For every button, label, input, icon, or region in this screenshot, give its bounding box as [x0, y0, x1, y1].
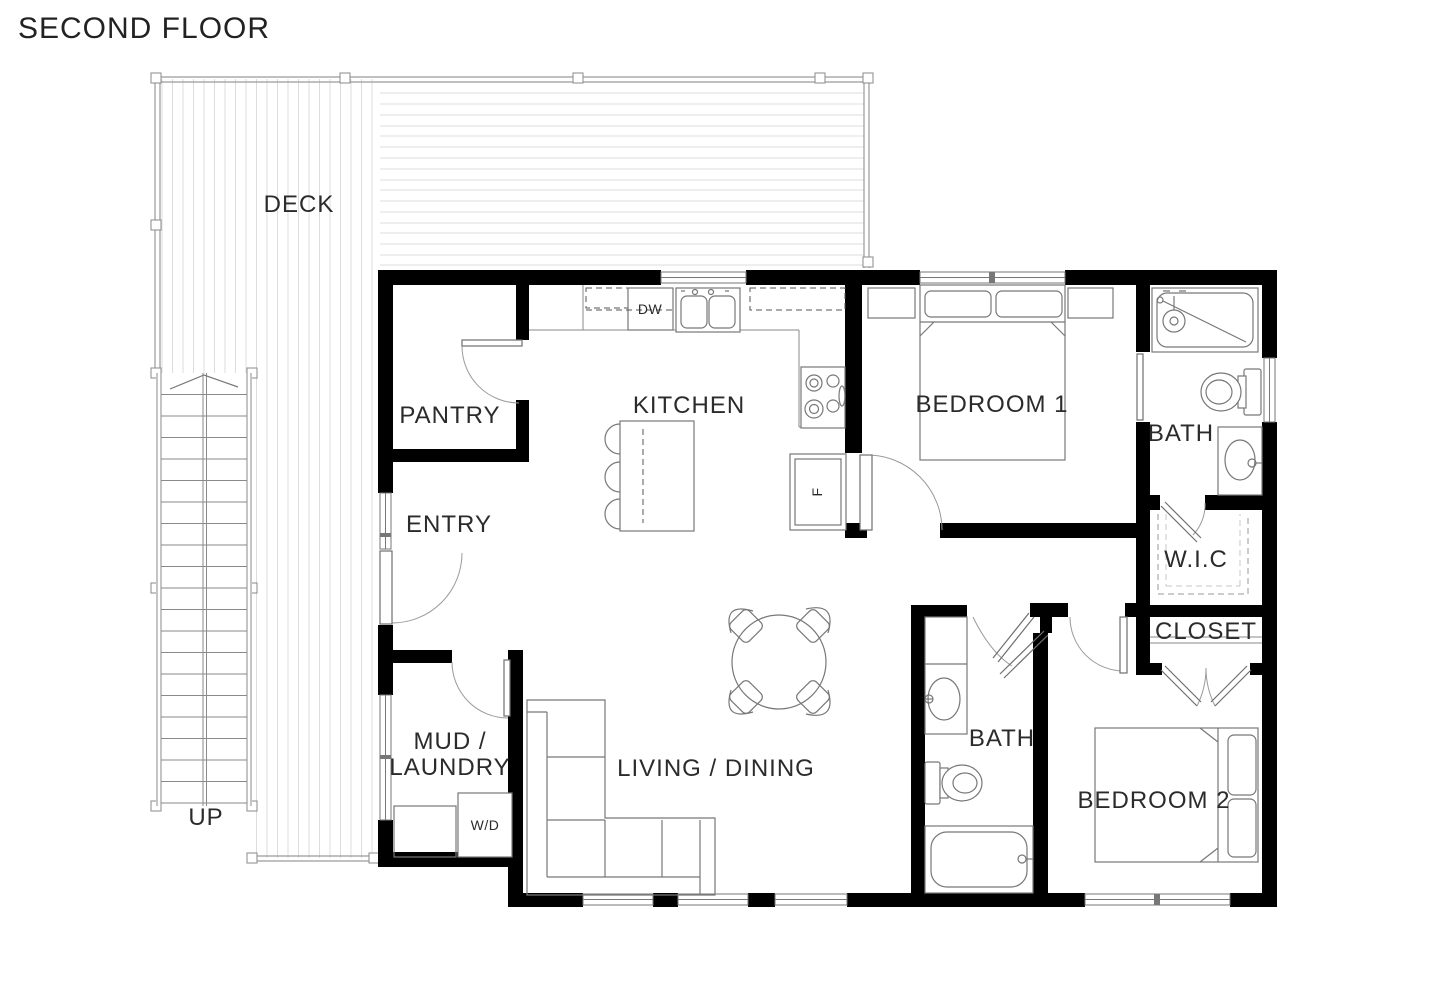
room-label-pantry: PANTRY	[399, 402, 500, 429]
toilet-bath2	[925, 762, 982, 804]
page-title: SECOND FLOOR	[18, 12, 270, 45]
dining-set	[728, 608, 832, 716]
dishwasher-label: DW	[638, 301, 663, 317]
room-label-bedroom2: BEDROOM 2	[1077, 787, 1230, 814]
bedroom1-door	[860, 455, 942, 530]
island-stool	[605, 424, 620, 454]
living-window-1	[583, 894, 653, 905]
room-label-kitchen: KITCHEN	[633, 392, 745, 419]
deck-planks-horizontal	[380, 93, 864, 265]
bath1-window	[1264, 358, 1275, 422]
dining-chair	[728, 608, 765, 645]
bath1-fixtures	[1152, 288, 1262, 495]
entry-door	[380, 551, 462, 624]
mud-bench	[394, 806, 456, 857]
dining-chair	[795, 608, 832, 645]
dining-table	[732, 615, 826, 709]
stairs	[156, 373, 252, 806]
bedroom1-furniture	[868, 285, 1113, 460]
nightstand	[1068, 288, 1113, 318]
kitchen-window	[661, 272, 746, 283]
room-label-deck: DECK	[264, 191, 335, 218]
bedroom1-window	[920, 272, 1065, 283]
bedroom2-door	[1070, 617, 1127, 673]
room-label-mud-line1: MUD /	[414, 728, 487, 755]
vanity-bath1	[1218, 427, 1262, 495]
kitchen-sink	[676, 288, 740, 332]
bathtub	[925, 826, 1033, 893]
room-label-bath2: BATH	[969, 725, 1035, 752]
room-label-bedroom1: BEDROOM 1	[915, 391, 1068, 418]
bed1	[920, 285, 1065, 460]
living-window-3	[775, 894, 847, 905]
toilet-bath1	[1201, 369, 1261, 415]
floor-plan-page: SECOND FLOOR DECK PANTRY KITCHEN ENTRY B…	[0, 0, 1445, 1001]
room-label-wic: W.I.C	[1164, 546, 1228, 573]
washer-dryer-label: W/D	[471, 817, 500, 833]
deck-rail-right	[864, 78, 869, 268]
vanity-bath2	[925, 617, 967, 734]
dining-chair	[795, 679, 832, 716]
bath1-pocket-door	[1137, 354, 1143, 420]
floor-plan-canvas: SECOND FLOOR DECK PANTRY KITCHEN ENTRY B…	[0, 0, 1445, 1001]
dining-chair	[728, 679, 765, 716]
room-label-entry: ENTRY	[406, 511, 492, 538]
living-window-2	[678, 894, 748, 905]
stairs-up-label: UP	[188, 804, 223, 831]
upper-cabinet-right	[750, 288, 845, 310]
kitchen-island	[605, 421, 694, 531]
shower-tub	[1152, 288, 1258, 352]
wic-door	[1161, 502, 1205, 542]
stove	[801, 367, 845, 428]
bedroom2-window	[1085, 894, 1230, 905]
nightstand	[868, 288, 915, 318]
sofa	[527, 700, 715, 895]
room-label-closet: CLOSET	[1155, 618, 1257, 645]
living-furniture	[527, 608, 831, 895]
fridge-label: F	[809, 487, 825, 496]
deck-rail-bottom-strip	[252, 856, 374, 861]
closet-double-doors	[1161, 666, 1251, 706]
deck-rail-top	[156, 77, 868, 82]
island-stool	[605, 499, 620, 529]
room-label-bath1: BATH	[1148, 420, 1214, 447]
island-stool	[605, 462, 620, 492]
entry-window	[380, 493, 391, 549]
pantry-door	[462, 340, 522, 403]
room-label-mud-line2: LAUNDRY	[389, 754, 510, 781]
room-label-living-dining: LIVING / DINING	[617, 755, 815, 782]
mud-door	[452, 660, 510, 718]
deck-planks-vertical-upper	[162, 79, 246, 373]
